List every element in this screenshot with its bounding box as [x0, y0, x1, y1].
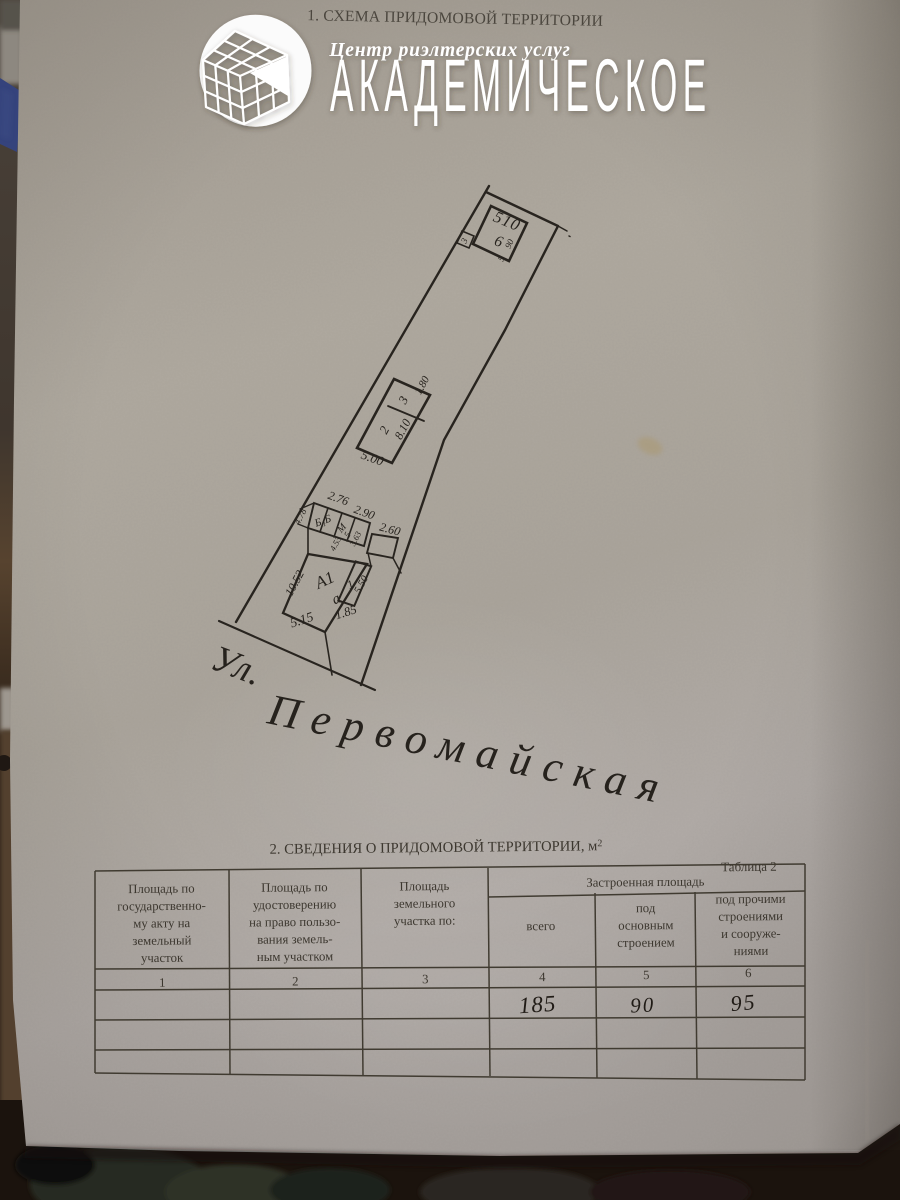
svg-text:Застроенная площадь: Застроенная площадь [586, 875, 704, 890]
svg-text:всего: всего [526, 919, 555, 933]
svg-text:6: 6 [745, 966, 752, 980]
svg-text:90: 90 [630, 992, 656, 1017]
svg-text:АКАДЕМИЧЕСКОЕ: АКАДЕМИЧЕСКОЕ [330, 46, 711, 128]
svg-text:Площадь поудостоверениюна прав: Площадь поудостоверениюна право пользо-в… [249, 880, 341, 964]
svg-text:185: 185 [518, 991, 557, 1019]
svg-text:4: 4 [539, 970, 546, 984]
svg-text:1: 1 [159, 976, 166, 990]
svg-text:Площадьземельногоучастка по:: Площадьземельногоучастка по: [394, 879, 456, 928]
svg-text:2. СВЕДЕНИЯ О ПРИДОМОВОЙ ТЕРРИ: 2. СВЕДЕНИЯ О ПРИДОМОВОЙ ТЕРРИТОРИИ, м2 [269, 837, 602, 857]
svg-text:3: 3 [422, 972, 429, 986]
svg-text:95: 95 [729, 989, 757, 1016]
svg-text:2: 2 [292, 974, 299, 988]
svg-text:5: 5 [643, 968, 650, 982]
svg-text:Таблица 2: Таблица 2 [721, 859, 777, 875]
